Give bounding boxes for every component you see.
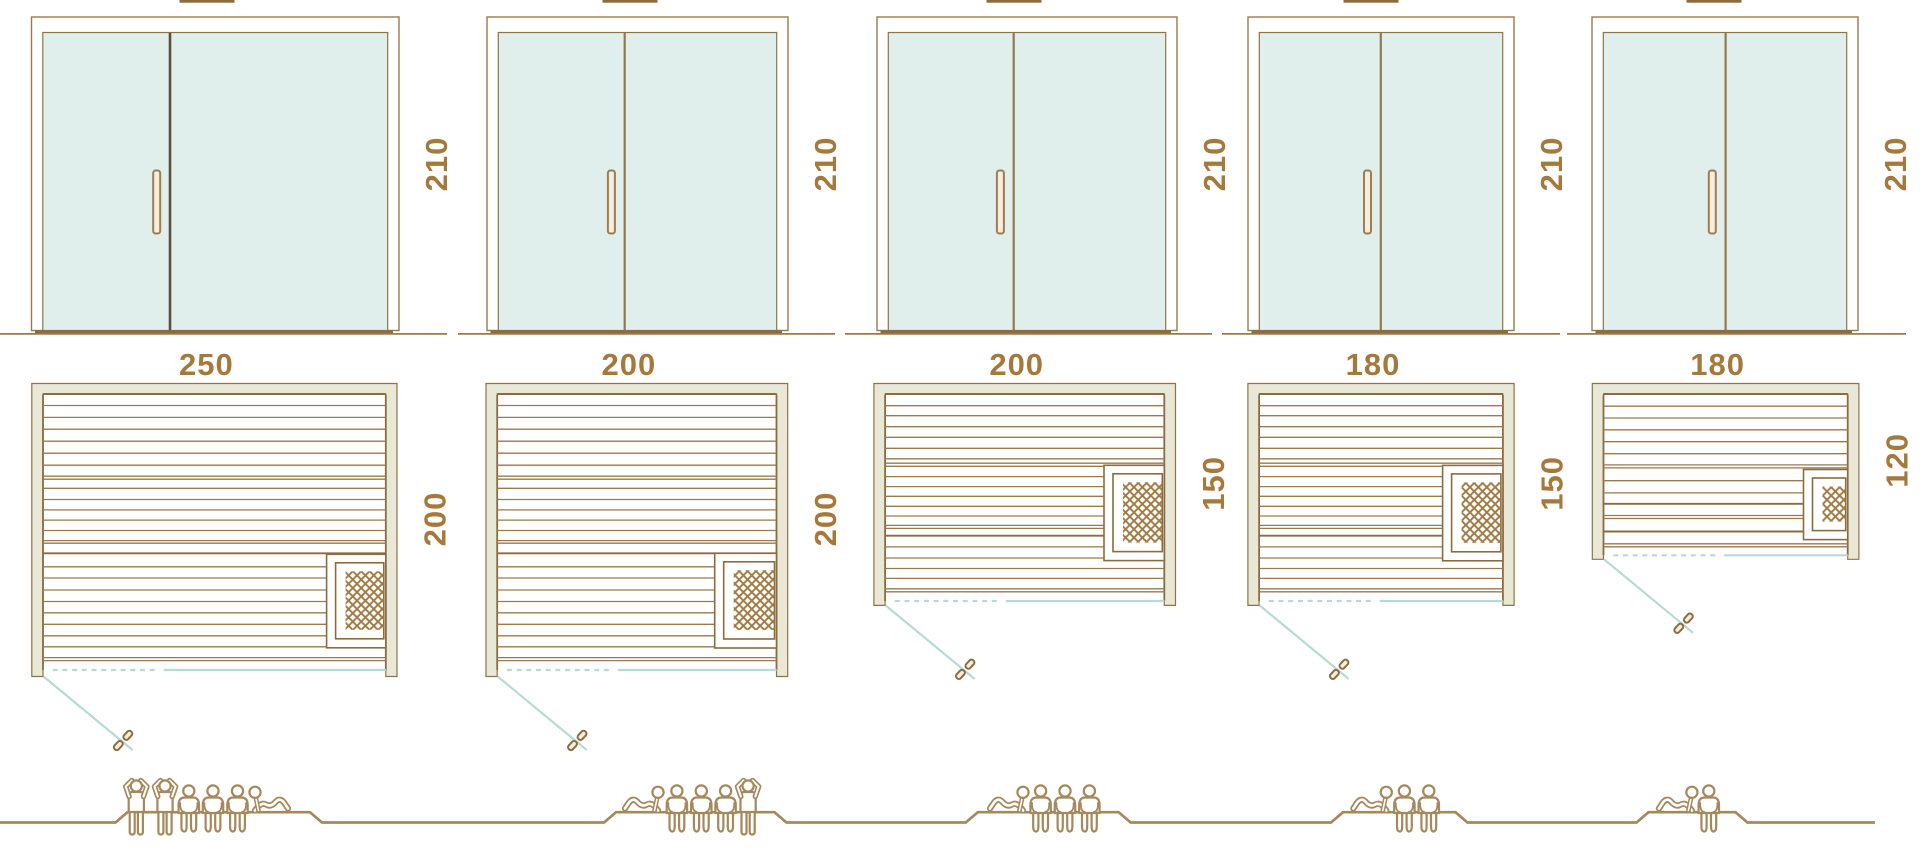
svg-text:180: 180 — [1346, 347, 1401, 382]
svg-text:210: 210 — [1197, 137, 1232, 192]
svg-text:250: 250 — [179, 347, 234, 382]
svg-text:210: 210 — [808, 137, 843, 192]
svg-text:200: 200 — [989, 347, 1044, 382]
svg-text:150: 150 — [1196, 456, 1231, 511]
svg-text:210: 210 — [1534, 137, 1569, 192]
svg-text:180: 180 — [1690, 347, 1745, 382]
svg-text:150: 150 — [1535, 456, 1570, 511]
svg-text:210: 210 — [419, 137, 454, 192]
svg-text:200: 200 — [418, 492, 453, 547]
svg-text:200: 200 — [602, 347, 657, 382]
svg-text:210: 210 — [1878, 137, 1913, 192]
svg-text:120: 120 — [1879, 433, 1914, 488]
svg-text:200: 200 — [808, 492, 843, 547]
